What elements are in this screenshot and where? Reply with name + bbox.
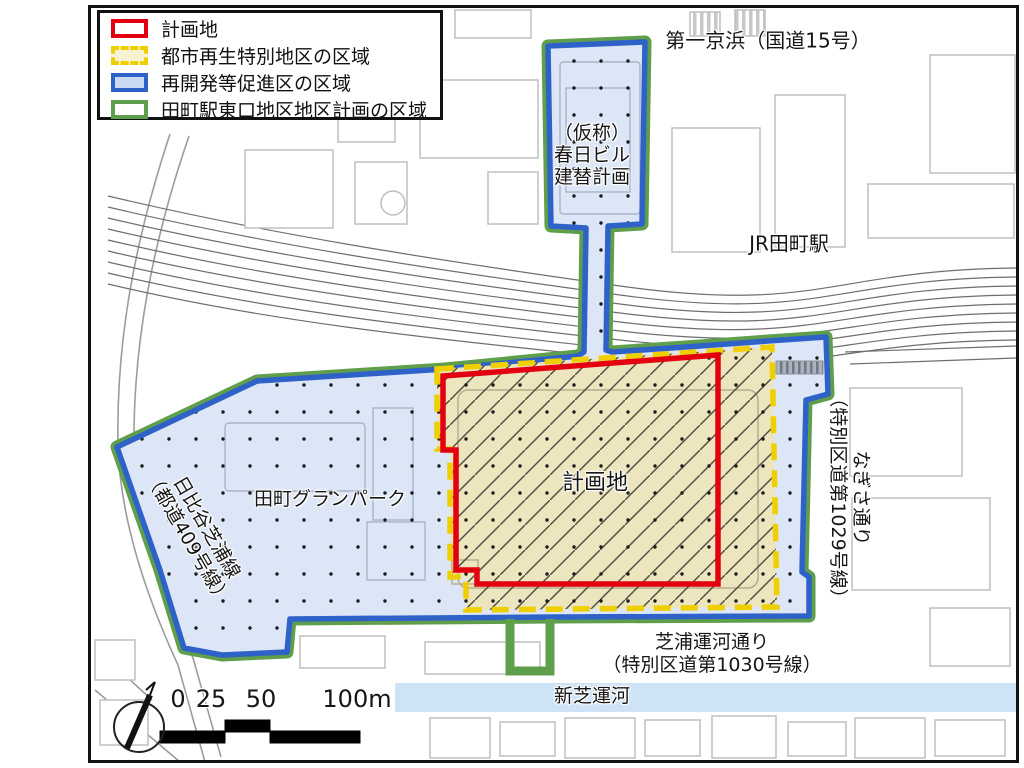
scale-50-label: 50 (246, 686, 277, 714)
special-district-swatch (111, 46, 148, 65)
shinshiba-canal (395, 683, 1017, 712)
legend-label: 計画地 (161, 15, 218, 42)
legend-item-promotion-area: 再開発等促進区の区域 (100, 69, 440, 96)
scale-100m-label: 100m (322, 686, 391, 714)
legend-label: 都市再生特別地区の区域 (161, 42, 370, 69)
district-plan-swatch (111, 100, 148, 119)
jr-tamachi-station-label: JR田町駅 (749, 233, 829, 256)
granpark-label: 田町グランパーク (254, 489, 406, 511)
legend-item-planned-site: 計画地 (100, 15, 440, 42)
shinshiba-canal-label: 新芝運河 (554, 686, 630, 708)
map-screenshot: 計画地 都市再生特別地区の区域 再開発等促進区の区域 田町駅東口地区地区計画の区… (0, 0, 1024, 768)
nagisa-street-label: なぎさ通り （特別区道第1029号線） (826, 388, 872, 607)
scale-25-label: 25 (196, 686, 227, 714)
shibaura-canal-road-label: 芝浦運河通り （特別区道第1030号線） (602, 631, 821, 677)
legend-item-district-plan: 田町駅東口地区地区計画の区域 (100, 96, 440, 123)
planned-site-swatch (111, 19, 148, 38)
legend-label: 田町駅東口地区地区計画の区域 (161, 96, 427, 123)
legend-item-special-district: 都市再生特別地区の区域 (100, 42, 440, 69)
route15-label: 第一京浜（国道15号） (665, 30, 870, 53)
kasuga-building-label: （仮称） 春日ビル 建替計画 (554, 123, 630, 189)
scale-0-label: 0 (170, 686, 185, 714)
promotion-area-swatch (111, 73, 148, 92)
planned-site-label: 計画地 (562, 470, 628, 495)
legend-label: 再開発等促進区の区域 (161, 69, 351, 96)
station-platform-structure (776, 361, 823, 374)
legend: 計画地 都市再生特別地区の区域 再開発等促進区の区域 田町駅東口地区地区計画の区… (97, 10, 443, 120)
